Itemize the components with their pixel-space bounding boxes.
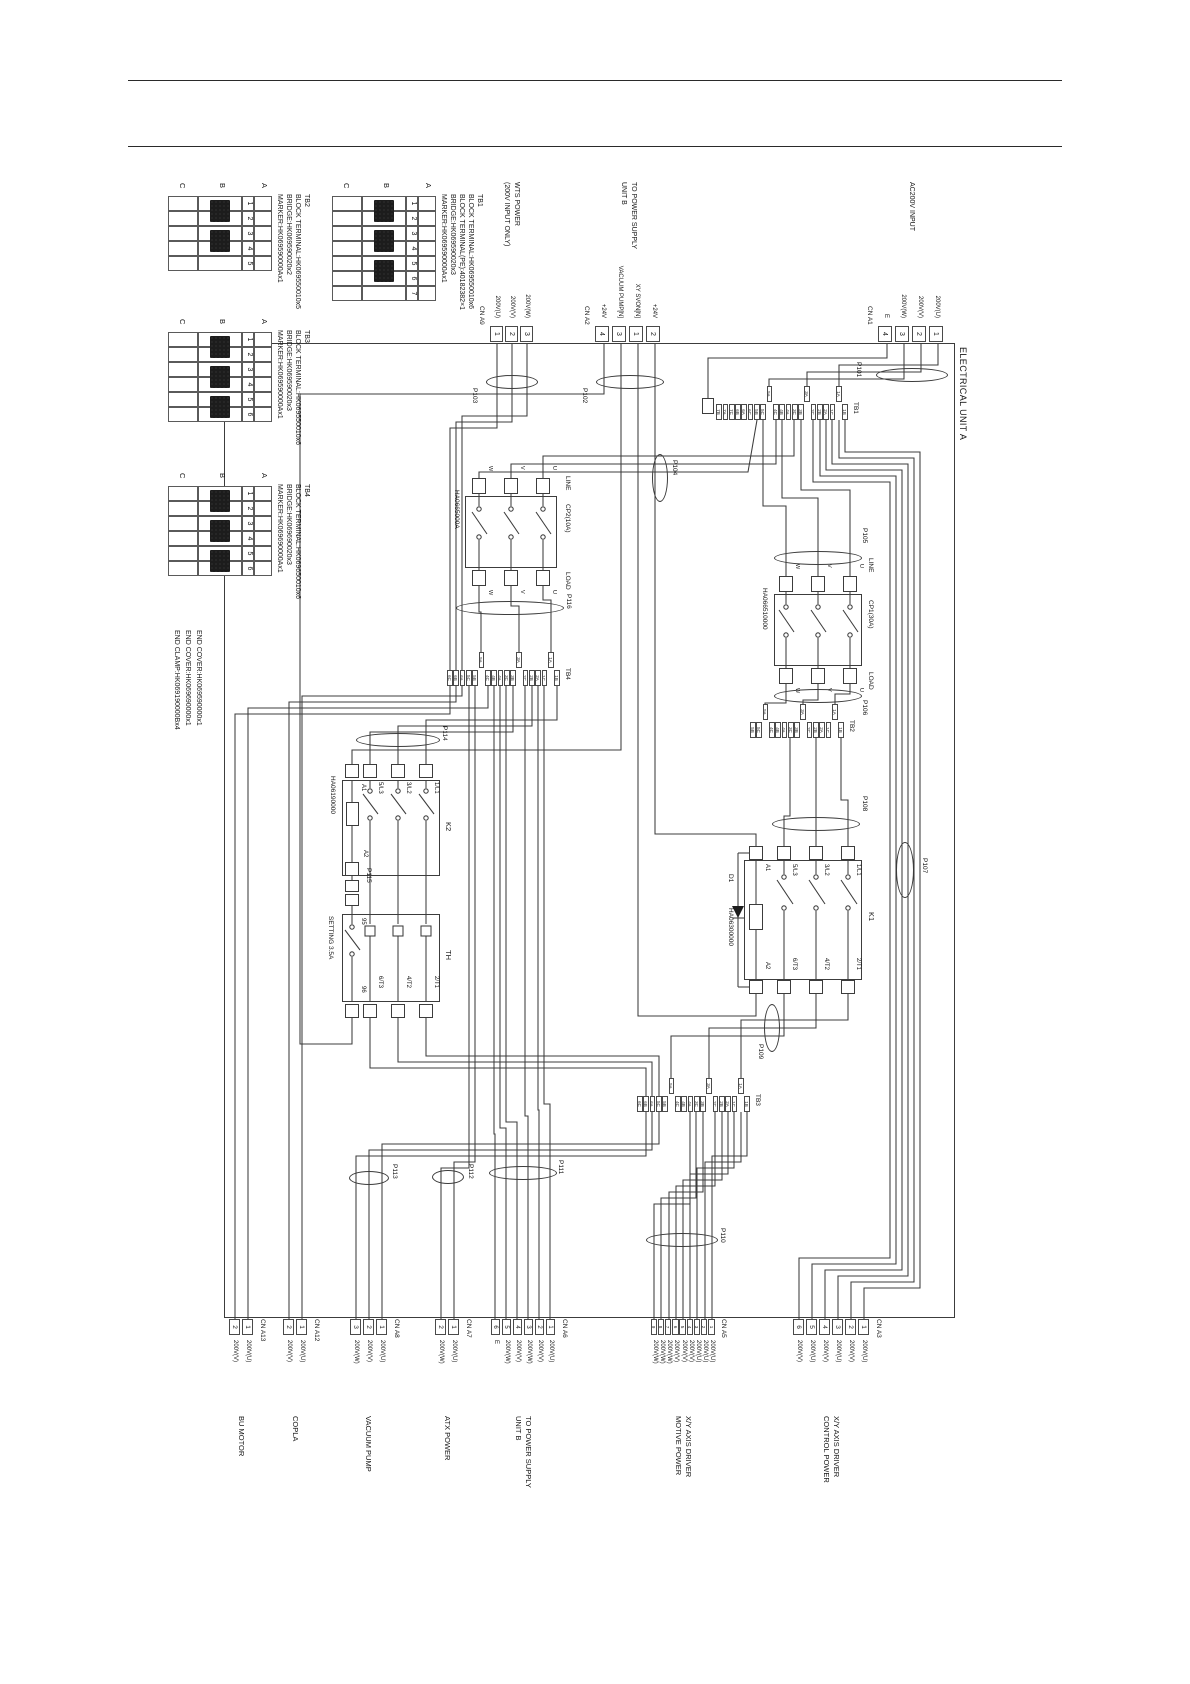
connector-a12-pin-2-label: 200V(V) [286,1340,293,1412]
connector-a8-pin-2[interactable]: 2 [363,1319,374,1335]
connector-a3-pin-3-label: 200V(U) [835,1340,842,1412]
strip-tb4-pin-5C: 5C [466,670,472,686]
k1-part-number: HA06300000 [727,908,734,946]
cp1-pole-w: W [794,564,800,569]
strip-tb2-pin-3A: 3A [800,704,806,720]
table-tb1-row-B: B [381,183,390,188]
strip-tb4-pin-4B: 4B [491,670,497,686]
strip-tb2-pin-4B: 4B [775,722,781,738]
table-tb1-cell [418,211,436,226]
th-contacts [342,914,440,1002]
strip-tb2-pin-2C: 2C [807,722,813,738]
strip-tb3-pin-5C: 5C [656,1096,662,1112]
cable-marker-p105 [774,551,862,565]
table-tb4-bridge-5-6 [210,550,230,572]
cable-marker-p106 [774,689,862,703]
k2-lbl-5l3: 5/L3 [376,782,383,794]
connector-a6-pin-2[interactable]: 2 [535,1319,545,1335]
connector-a3-pin-1[interactable]: 1 [858,1319,869,1335]
table-tb3-bridge-1-2 [210,336,230,358]
connector-a1-name: CN A1 [866,306,873,352]
th-name: TH [443,950,452,960]
connector-a8-pin-3[interactable]: 3 [350,1319,361,1335]
connector-a1-pin-1[interactable]: 1 [930,326,944,342]
connector-a8-device-label: VACUUM PUMP [364,1416,374,1546]
strip-tb1-pin-1B: 1B [842,404,848,420]
cp2-part-number: HA0665000A [453,490,460,529]
cp2-line-term-w [472,478,486,494]
connector-a6-pin-5-label: 200V(W) [504,1340,511,1412]
strip-tb1-pin-2C: 2C [811,404,817,420]
connector-a7-name: CN A7 [465,1319,472,1365]
k1-lbl-1l1: 1/L1 [854,864,861,876]
strip-tb4-pin-3B: 3B [510,670,516,686]
connector-a2-pin-1[interactable]: 1 [630,326,644,342]
connector-a2-pin-2-label: +24V [651,252,658,318]
k2-term-1l1 [419,764,433,778]
part-table-tb1-title: TB1 BLOCK TERMINAL:HK069550010x6 BLOCK T… [439,194,484,310]
connector-a5-pin-3-label: 200V(U) [694,1340,701,1412]
connector-a13-pin-1[interactable]: 1 [242,1319,253,1335]
cp1-pole-u: U [858,564,864,568]
table-tb2-cell [254,196,272,211]
connector-a7-pin-2[interactable]: 2 [435,1319,446,1335]
strip-tb4-pin-4C: 4C [485,670,491,686]
table-tb4-cell [168,516,198,531]
table-tb4-cell: 5 [242,546,254,561]
table-tb3-cell: 5 [242,392,254,407]
cable-label-p107: P107 [921,858,928,873]
connector-a8-pin-2-label: 200V(V) [366,1340,373,1412]
cp1-load-term-w [779,668,793,684]
connector-a5-pin-2[interactable]: 2 [701,1319,707,1335]
strip-tb3-pin-5A: 5A [669,1078,675,1094]
k2-term-a2 [345,862,359,876]
connector-a6-name: CN A6 [561,1319,568,1365]
cable-marker-p102 [596,375,664,389]
table-tb3-cell: 2 [242,347,254,362]
connector-a12-pin-1[interactable]: 1 [296,1319,307,1335]
connector-a12-pin-1-label: 200V(U) [299,1340,306,1412]
table-tb1-cell [332,226,362,241]
strip-tb1-pin-5C: 5C [760,404,766,420]
strip-tb2-pin-4A: 4A [782,722,788,738]
connector-a9-pin-2[interactable]: 2 [505,326,518,342]
connector-a1-pin-1-label: 200V(U) [934,252,941,318]
strip-tb2-pin-3C: 3C [788,722,794,738]
cable-marker-p103 [486,375,538,389]
connector-a2-pin-2[interactable]: 2 [647,326,661,342]
connector-a3-pin-4[interactable]: 4 [819,1319,830,1335]
connector-a6-pin-2-label: 200V(V) [537,1340,544,1412]
connector-a5-pin-3[interactable]: 3 [694,1319,700,1335]
connector-a3-pin-3[interactable]: 3 [832,1319,843,1335]
k1-coil [749,904,763,930]
cp2-name: CP2(10A) [564,504,571,533]
k1-lbl-a2: A2 [763,962,770,969]
strip-tb1-pin-3B: 3B [798,404,804,420]
connector-a3-pin-4-label: 200V(V) [822,1340,829,1412]
strip-tb1-label: TB1 [852,402,859,414]
connector-a12-device-label: COPLA [290,1416,300,1546]
connector-a2-pin-4[interactable]: 4 [596,326,610,342]
k1-term-2t1 [841,980,855,994]
strip-tb1-pin-4C: 4C [773,404,779,420]
strip-tb4-pin-3C: 3C [504,670,510,686]
table-tb3-cell [254,407,272,422]
table-tb3-cell [254,377,272,392]
connector-a5-pin-4-label: 200V(V) [687,1340,694,1412]
connector-a13-pin-1-label: 200V(U) [245,1340,252,1412]
connector-a2-pin-1-label: XY SVON[N] [634,252,641,318]
strip-tb3-pin-1A: 1A [738,1078,744,1094]
connector-a1-pin-2[interactable]: 2 [913,326,927,342]
strip-tb1-pin-7B: 7B [716,404,722,420]
connector-a5-pin-1[interactable]: 1 [708,1319,714,1335]
cp1-line-term-u [843,576,857,592]
table-tb4-row-B: B [217,473,226,478]
strip-tb1-pin-6C: 6C [748,404,754,420]
table-tb4-cell [254,501,272,516]
k1-diode-label: D1 [727,874,734,882]
connector-a2-name: CN A2 [583,306,590,352]
connector-a9-pin-3[interactable]: 3 [520,326,533,342]
connector-a5-pin-5[interactable]: 5 [679,1319,685,1335]
connector-a1-pin-3-label: 200V(W) [900,252,907,318]
strip-tb2-pin-4C: 4C [769,722,775,738]
table-tb2-cell [168,226,198,241]
connector-a7-pin-1[interactable]: 1 [448,1319,459,1335]
cable-label-p108: P108 [861,796,868,811]
strip-tb4-pin-6A: 6A [460,670,466,686]
k1-term-a1 [749,846,763,860]
k2-lbl-a1: A1 [359,784,366,791]
table-tb2-bridge-1-2 [210,200,230,222]
table-tb1-cell [332,256,362,271]
part-table-tb3-title: TB3 BLOCK TERMINAL:HK069550010x6 BRIDGE:… [275,330,311,445]
k1-lbl-a1: A1 [763,864,770,871]
connector-a7-pin-1-label: 200V(U) [451,1340,458,1412]
strip-tb1-pin-5B: 5B [754,404,760,420]
connector-a2-pin-3-label: VACUUM PUMP[N] [617,252,624,318]
k2-part-number: HA06190000 [329,776,336,814]
k2-name: K2 [443,822,452,831]
table-tb3-cell [254,332,272,347]
strip-tb4-pin-1A: 1A [548,652,554,668]
cp1-name: CP1(30A) [867,600,874,629]
strip-tb2-pin-5A: 5A [763,704,769,720]
table-tb1-bridge-1-2 [374,200,394,222]
cable-marker-p109 [764,1004,780,1052]
table-tb2-cell [168,241,198,256]
cable-label-p110: P110 [719,1228,726,1243]
strip-tb4-pin-4A: 4A [498,670,504,686]
strip-tb1-pin-1C: 1C [830,404,836,420]
th-setting-label: SETTING 3.5A [327,916,334,959]
strip-tb2-pin-3B: 3B [794,722,800,738]
table-tb2-row-A: A [259,183,268,188]
k1-lbl-2t1: 2/T1 [854,958,861,970]
cp2-load-term-u [536,570,550,586]
table-tb1-cell [418,271,436,286]
table-tb1-cell [332,211,362,226]
cp2-pole-w2: W [487,590,493,595]
table-tb2-cell: 5 [242,256,254,271]
k2-lbl-1l1: 1/L1 [432,782,439,794]
k2-term-a1 [345,764,359,778]
connector-a9-name: CN A9 [478,306,485,352]
strip-tb1-pin-2A: 2A [823,404,829,420]
table-tb1-bridge-3-4 [374,230,394,252]
table-tb2-cell: 3 [242,226,254,241]
connector-a5-pin-7[interactable]: 7 [665,1319,671,1335]
strip-tb4-pin-2B: 2B [529,670,535,686]
table-tb2-cell: 1 [242,196,254,211]
table-tb3-cell: 4 [242,377,254,392]
strip-tb1-pin-4B: 4B [779,404,785,420]
table-tb4-bridge-1-2 [210,490,230,512]
table-tb4-cell [254,561,272,576]
cable-label-p114: P114 [441,726,448,741]
strip-tb1-pin-3A: 3A [804,386,810,402]
connector-a6-pin-6[interactable]: 6 [491,1319,501,1335]
table-tb2-cell [168,196,198,211]
connector-a3-pin-5[interactable]: 5 [806,1319,817,1335]
connector-a1-device-label: AC200V INPUT [906,182,916,260]
cable-marker-p104 [652,454,668,502]
cable-label-p105: P105 [861,528,868,543]
th-term-6t3 [363,1004,377,1018]
connector-a6-pin-3-label: 200V(W) [526,1340,533,1412]
connector-a3-pin-1-label: 200V(U) [861,1340,868,1412]
cable-marker-p107 [896,842,914,898]
strip-tb4-pin-2A: 2A [535,670,541,686]
cp2-line-term-u [536,478,550,494]
table-tb4-cell: 1 [242,486,254,501]
strip-tb3-pin-1B: 1B [744,1096,750,1112]
strip-tb4-pin-1B: 1B [554,670,560,686]
connector-a13-pin-2[interactable]: 2 [229,1319,240,1335]
strip-tb1-pin-6A: 6A [741,404,747,420]
k1-term-a2 [749,980,763,994]
connector-a5-pin-9[interactable]: 9 [651,1319,657,1335]
cable-marker-p112 [432,1170,464,1184]
cable-label-p101: P101 [855,362,862,377]
th-term-2t1 [419,1004,433,1018]
cp1-load-term-v [811,668,825,684]
cable-marker-p116 [456,601,564,615]
cable-label-p112: P112 [467,1164,474,1179]
table-tb2-cell [168,211,198,226]
connector-a8-name: CN A8 [393,1319,400,1365]
cable-marker-p113 [349,1171,389,1185]
strip-tb3-pin-4B: 4B [681,1096,687,1112]
table-tb2-cell: 4 [242,241,254,256]
strip-tb2-pin-1C: 1C [826,722,832,738]
cable-label-p109: P109 [757,1044,764,1059]
connector-a13-pin-2-label: 200V(V) [232,1340,239,1412]
connector-a6-pin-4[interactable]: 4 [513,1319,523,1335]
connector-a2-pin-3[interactable]: 3 [613,326,627,342]
table-tb1-cell [332,286,362,301]
connector-a9-pin-1[interactable]: 1 [490,326,503,342]
connector-a6-pin-1-label: 200V(U) [548,1340,555,1412]
table-tb4-cell [254,486,272,501]
table-tb3-cell [168,347,198,362]
connector-a2-pin-4-label: +24V [600,252,607,318]
table-tb1-bridge-5-6 [374,260,394,282]
table-tb4-cell [254,546,272,561]
table-tb1-cell [418,196,436,211]
connector-a5-pin-6[interactable]: 6 [672,1319,678,1335]
table-tb3-cell [254,362,272,377]
connector-a7-device-label: ATX POWER [442,1416,452,1546]
table-tb4-cell: 2 [242,501,254,516]
p115-plug [345,880,359,892]
connector-a5-device-label: X/Y AXIS DRIVER MOTIVE POWER [673,1416,693,1546]
connector-a1-pin-4[interactable]: 4 [879,326,893,342]
strip-tb3-label: TB3 [754,1094,761,1106]
cp1-line-term-v [811,576,825,592]
header-rule-bottom [128,146,1062,147]
table-tb4-bridge-3-4 [210,520,230,542]
connector-a9-pin-2-label: 200V(V) [509,252,516,318]
table-tb4-cell [168,501,198,516]
table-tb1-cell [418,286,436,301]
strip-tb4-label: TB4 [564,668,571,680]
connector-a8-pin-1-label: 200V(U) [379,1340,386,1412]
strip-tb3-pin-2B: 2B [719,1096,725,1112]
cable-marker-p108 [772,817,860,831]
table-tb3-cell: 6 [242,407,254,422]
k1-term-5l3 [777,846,791,860]
cp2-load-label: LOAD [564,572,571,590]
strip-tb4-pin-5A: 5A [479,652,485,668]
cp1-part-number: HA066510000 [761,588,768,630]
table-tb3-bridge-5-6 [210,396,230,418]
table-tb4-cell [254,531,272,546]
strip-tb1-pin-4A: 4A [786,404,792,420]
strip-tb3-pin-2A: 2A [725,1096,731,1112]
header-rule-top [128,80,1062,81]
table-tb1-cell: 2 [406,211,418,226]
table-tb3-row-C: C [177,319,186,324]
connector-a1-pin-3[interactable]: 3 [896,326,910,342]
table-tb4-cell [168,486,198,501]
strip-tb3-pin-3A: 3A [706,1078,712,1094]
connector-a1-pin-2-label: 200V(V) [917,252,924,318]
connector-a5-pin-6-label: 200V(V) [673,1340,680,1412]
strip-tb3-pin-6B: 6B [643,1096,649,1112]
k1-lbl-5l3: 5/L3 [790,864,797,876]
k2-term-3l2 [391,764,405,778]
cp1-load-label: LOAD [867,672,874,690]
table-tb1-cell [418,256,436,271]
cp2-pole-w: W [487,466,493,471]
cp1-load-term-u [843,668,857,684]
connector-a6-pin-1[interactable]: 1 [546,1319,556,1335]
connector-a3-pin-2[interactable]: 2 [845,1319,856,1335]
cp2-load-term-w [472,570,486,586]
k1-term-6t3 [777,980,791,994]
th-lbl-2t1: 2/T1 [432,976,439,988]
th-term-4t2 [391,1004,405,1018]
table-tb3-cell [168,392,198,407]
k1-lbl-4t2: 4/T2 [822,958,829,970]
cp2-pole-v2: V [519,590,525,594]
k1-lbl-6t3: 6/T3 [790,958,797,970]
connector-a5-pin-4[interactable]: 4 [687,1319,693,1335]
table-tb1-cell [418,226,436,241]
strip-tb2-pin-5B: 5B [750,722,756,738]
table-tb4-cell [168,531,198,546]
strip-tb1-pin-1A: 1A [836,386,842,402]
strip-tb1-pin-3C: 3C [792,404,798,420]
table-tb4-row-A: A [259,473,268,478]
k2-coil [346,802,359,826]
connector-a12-pin-2[interactable]: 2 [283,1319,294,1335]
connector-a8-pin-1[interactable]: 1 [376,1319,387,1335]
strip-tb2-pin-2A: 2A [819,722,825,738]
table-tb1-cell: 1 [406,196,418,211]
connector-a5-pin-5-label: 200V(V) [680,1340,687,1412]
strip-tb1-pin-7A: 7A [723,404,729,420]
th-lbl-6t3: 6/T3 [376,976,383,988]
cable-label-p102: P102 [581,388,588,403]
table-tb2-cell [198,256,242,271]
connector-a5-pin-8[interactable]: 8 [658,1319,664,1335]
cable-label-p111: P111 [557,1160,564,1174]
table-tb1-cell: 6 [406,271,418,286]
connector-a6-pin-5[interactable]: 5 [502,1319,512,1335]
table-tb1-cell [332,271,362,286]
connector-a3-pin-6[interactable]: 6 [793,1319,804,1335]
cp1-line-term-w [779,576,793,592]
table-tb1-cell: 7 [406,286,418,301]
table-tb1-row-A: A [423,183,432,188]
table-tb1-cell [418,241,436,256]
k2-lbl-3l2: 3/L2 [404,782,411,794]
k1-name: K1 [866,912,875,921]
table-tb1-cell: 5 [406,256,418,271]
connector-a9-pin-1-label: 200V(U) [494,252,501,318]
cable-marker-p114 [356,733,440,747]
connector-a12-name: CN A12 [313,1319,320,1365]
table-tb4-cell: 4 [242,531,254,546]
connector-a3-device-label: X/Y AXIS DRIVER CONTROL POWER [821,1416,841,1546]
k1-term-4t2 [809,980,823,994]
connector-a1-pin-4-label: E [883,252,890,318]
table-tb1-cell [332,196,362,211]
wiring-diagram: ELECTRICAL UNIT A LINE CP1(30A) LOAD U V… [130,160,1060,1520]
connector-a5-pin-1-label: 200V(U) [709,1340,716,1412]
strip-tb3-pin-3C: 3C [694,1096,700,1112]
th-term-96 [345,1004,359,1018]
cable-marker-p111 [489,1166,557,1180]
cp1-pole-u2: U [858,688,864,692]
connector-a2-device-label: TO POWER SUPPLY UNIT B [618,182,638,260]
strip-tb2-label: TB2 [848,720,855,732]
manual-page: ELECTRICAL UNIT A LINE CP1(30A) LOAD U V… [0,0,1190,1684]
table-tb2-cell [254,241,272,256]
pe-terminal [702,398,714,414]
cp2-pole-v: V [519,466,525,470]
table-tb3-cell [168,377,198,392]
connector-a6-pin-3[interactable]: 3 [524,1319,534,1335]
cable-marker-p101 [876,368,948,382]
table-tb1-row-C: C [341,183,350,188]
table-tb3-row-A: A [259,319,268,324]
